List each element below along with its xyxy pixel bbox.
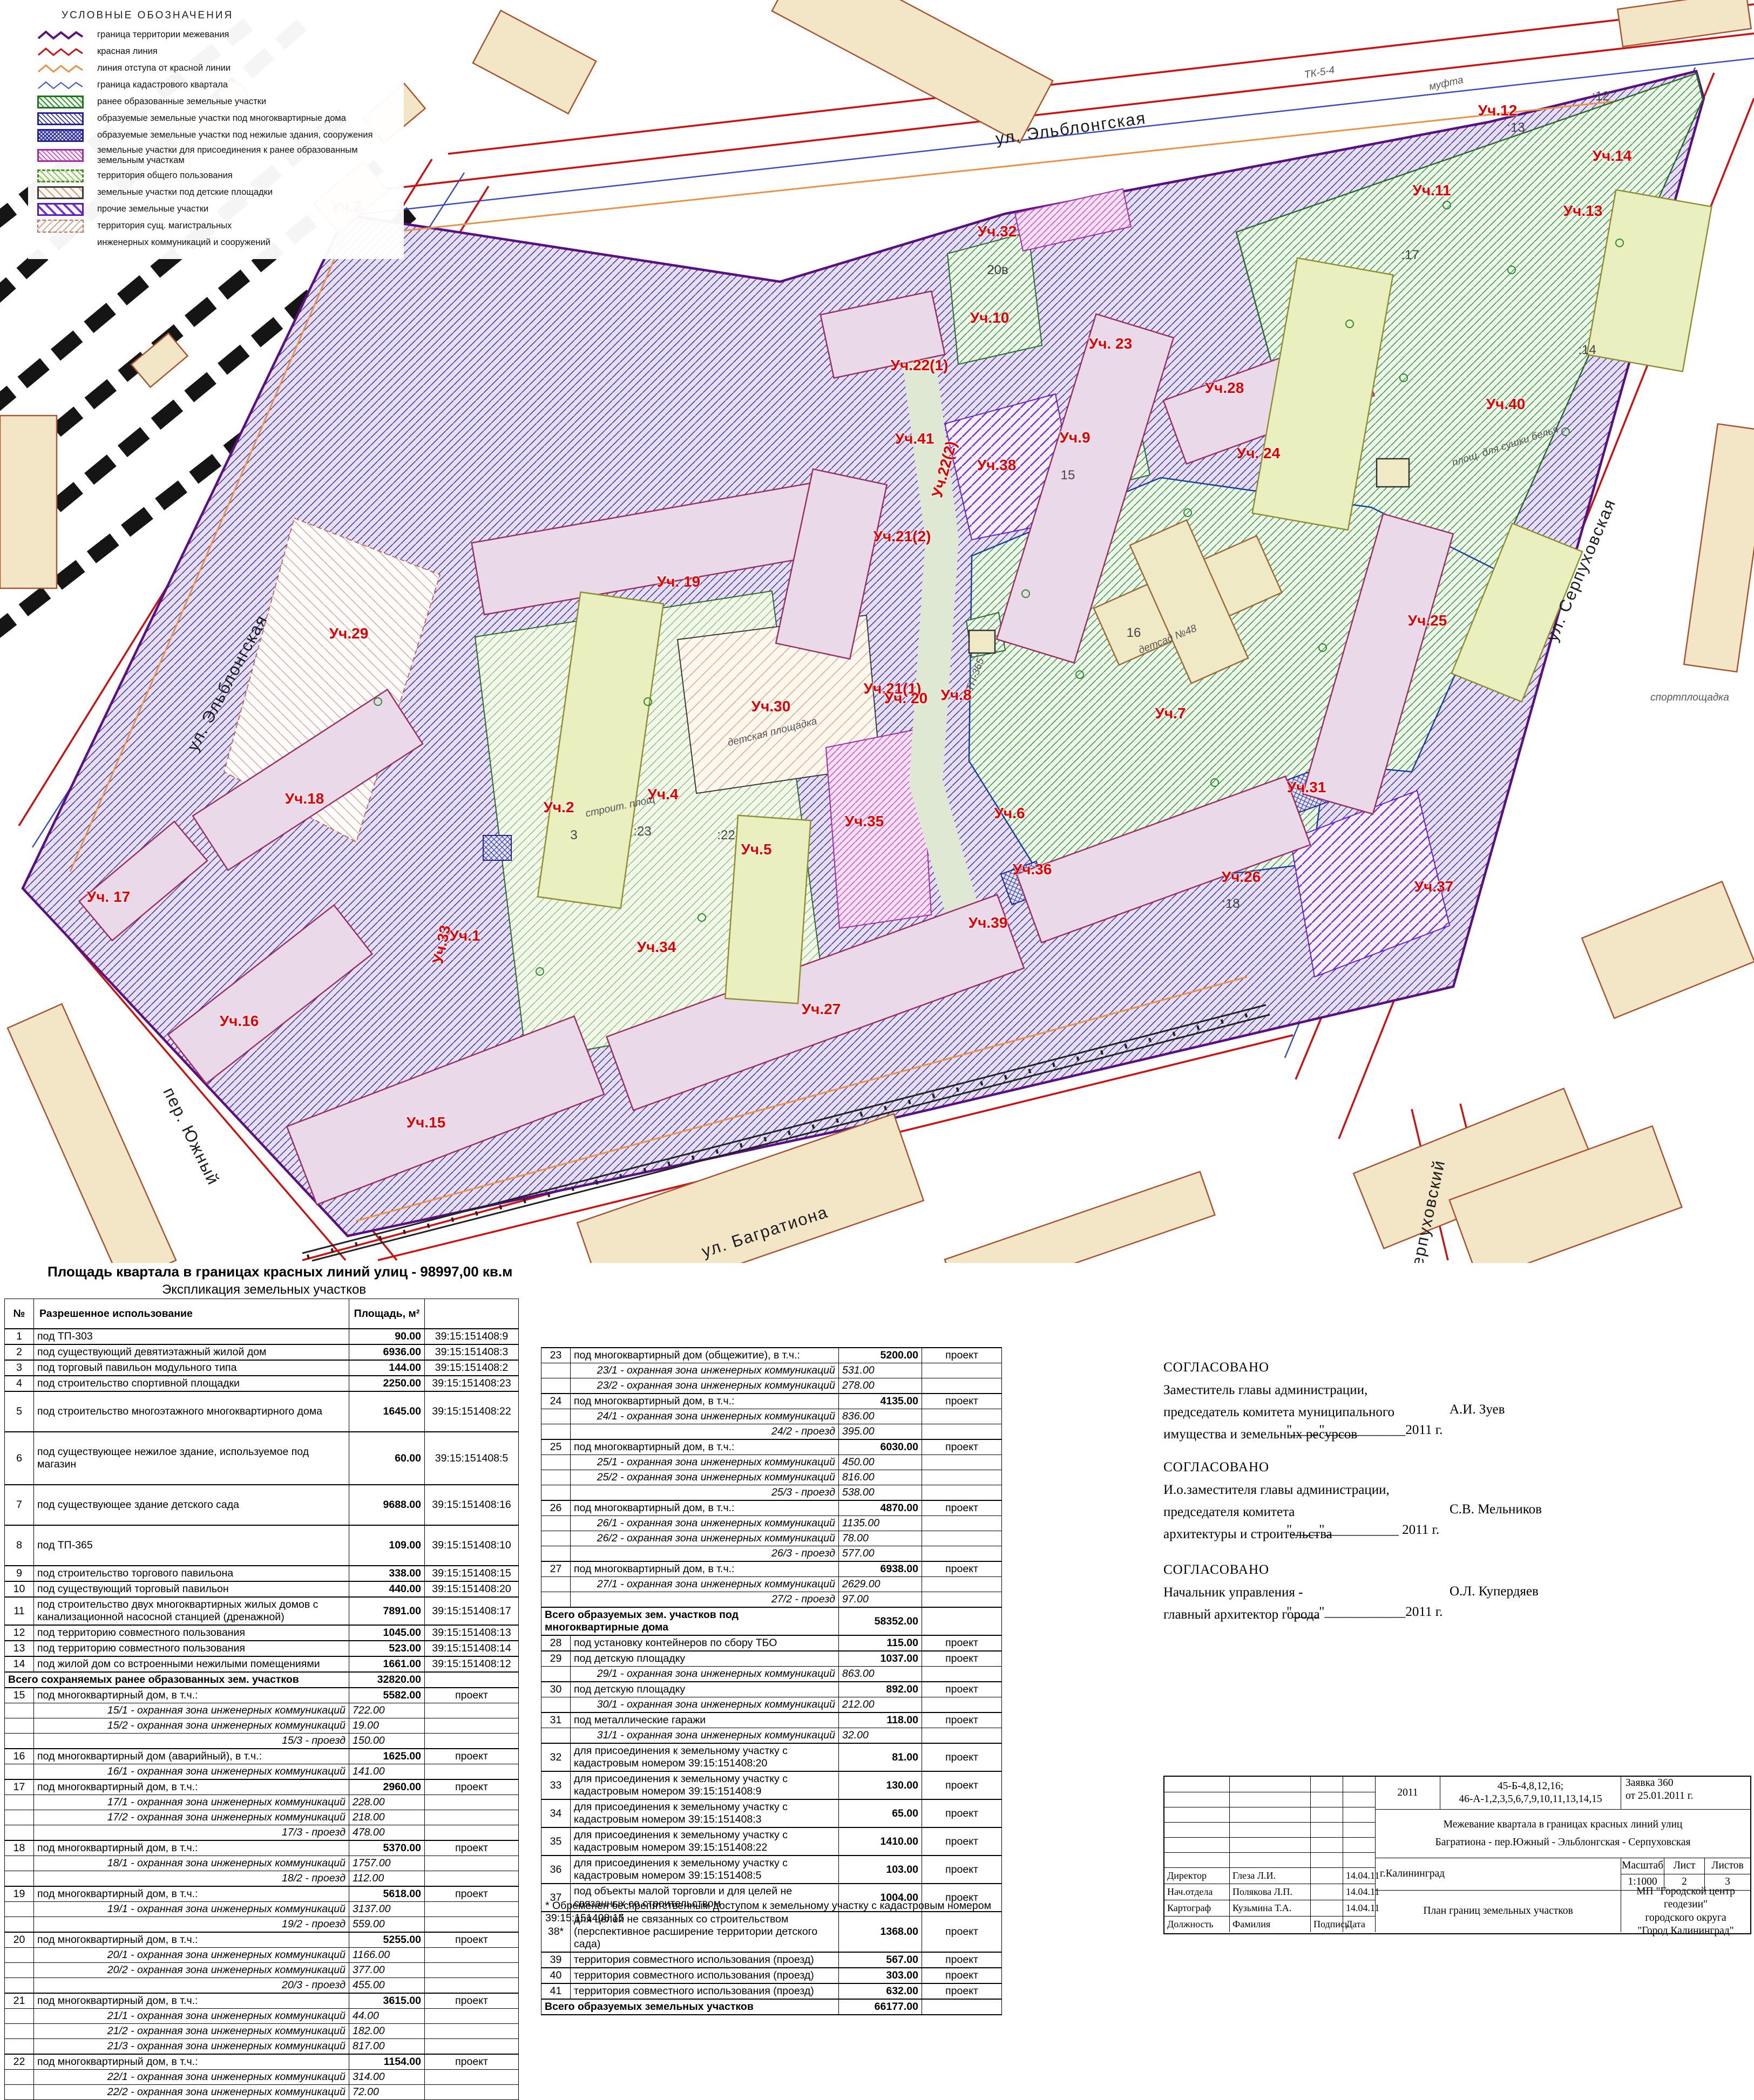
stamp-role-cell: Полякова Л.П. xyxy=(1229,1884,1310,1900)
approval-date-line: "____"____________2011 г. xyxy=(1286,1423,1443,1438)
row-use: под существующее нежилое здание, использ… xyxy=(34,1432,349,1485)
row-note: 39:15:151408:14 xyxy=(425,1641,519,1656)
row-number xyxy=(541,1409,571,1424)
row-note xyxy=(425,1764,519,1780)
row-note xyxy=(425,1734,519,1749)
row-note xyxy=(425,2024,519,2039)
parcel-row: 1под ТП-30390.0039:15:151408:9 xyxy=(5,1329,519,1344)
table-footnote: * Обременен беспрепятственным доступом к… xyxy=(545,1900,1010,1925)
row-use: под существующий торговый павильон xyxy=(34,1581,349,1597)
row-area: 109.00 xyxy=(349,1525,425,1566)
parcel-row: 24под многоквартирный дом, в т.ч.:4135.0… xyxy=(541,1394,1002,1409)
legend-line-symbol xyxy=(37,79,84,92)
sub-row: 20/2 - охранная зона инженерных коммуник… xyxy=(5,1963,519,1978)
row-note xyxy=(922,1363,1002,1378)
parcel-row: 20под многоквартирный дом, в т.ч.:5255.0… xyxy=(5,1932,519,1948)
legend-line-symbol xyxy=(37,62,84,75)
row-area: 5200.00 xyxy=(839,1348,922,1363)
approval-header: СОГЛАСОВАНО xyxy=(1163,1562,1749,1578)
approval-line: главный архитектор города xyxy=(1163,1607,1749,1622)
row-use: под металлические гаражи xyxy=(571,1712,839,1728)
approval-signer-name: О.Л. Купердяев xyxy=(1450,1584,1676,1599)
legend-item-label: ранее образованные земельные участки xyxy=(97,97,266,107)
row-area: 1037.00 xyxy=(839,1651,922,1667)
row-note: проект xyxy=(425,1688,519,1703)
col-header-area: Площадь, м² xyxy=(349,1299,425,1329)
title-block: ДиректорГлеза Л.И.14.04.11Нач.отделаПоля… xyxy=(1163,1776,1751,1934)
row-number: 6 xyxy=(5,1432,34,1485)
row-use: 23/1 - охранная зона инженерных коммуник… xyxy=(571,1363,839,1378)
row-area: 118.00 xyxy=(839,1712,922,1728)
parcel-label: Уч.14 xyxy=(1593,147,1632,164)
row-number: 31 xyxy=(541,1712,571,1728)
parcel-row: 14под жилой дом со встроенными нежилыми … xyxy=(5,1656,519,1672)
row-note xyxy=(922,1697,1002,1713)
row-note xyxy=(922,1531,1002,1546)
row-note xyxy=(425,1795,519,1810)
row-area: 450.00 xyxy=(839,1455,922,1470)
row-use: под многоквартирный дом, в т.ч.: xyxy=(571,1500,839,1516)
stamp-footer-label: Подпись xyxy=(1310,1916,1343,1932)
sub-row: 18/1 - охранная зона инженерных коммуник… xyxy=(5,1856,519,1871)
parcel-label: Уч.2 xyxy=(543,799,574,815)
sub-row: 21/2 - охранная зона инженерных коммуник… xyxy=(5,2024,519,2039)
parcel-label: Уч. 20 xyxy=(884,690,927,706)
stamp-role-cell xyxy=(1310,1900,1343,1916)
row-note xyxy=(425,1825,519,1841)
row-number xyxy=(5,1734,34,1749)
parcel-label: Уч.15 xyxy=(407,1114,446,1131)
sub-row: 17/3 - проезд478.00 xyxy=(5,1825,519,1841)
row-note: 39:15:151408:22 xyxy=(425,1391,519,1432)
row-area: 103.00 xyxy=(839,1856,922,1884)
approval-line: архитектуры и строительства xyxy=(1163,1527,1749,1542)
row-area: 1154.00 xyxy=(349,2054,425,2070)
row-use: под строительство торгового павильона xyxy=(34,1566,349,1581)
legend-item-label: образуемые земельные участки под нежилые… xyxy=(97,130,373,140)
row-note xyxy=(425,1856,519,1871)
parcel-row: 25под многоквартирный дом, в т.ч.:6030.0… xyxy=(541,1439,1002,1455)
row-use: 19/1 - охранная зона инженерных коммуник… xyxy=(34,1902,349,1917)
stamp-role-cell: Картограф xyxy=(1164,1900,1229,1916)
row-note: 39:15:151408:16 xyxy=(425,1485,519,1525)
stamp-footer-label: Дата xyxy=(1343,1916,1375,1932)
parcel-row: 9под строительство торгового павильона33… xyxy=(5,1566,519,1581)
row-area: 60.00 xyxy=(349,1432,425,1485)
legend-items: граница территории межеваниякрасная лини… xyxy=(37,28,404,249)
row-area: 816.00 xyxy=(839,1470,922,1485)
row-use: территория совместного использования (пр… xyxy=(571,1968,839,1983)
sub-row: 15/3 - проезд150.00 xyxy=(5,1734,519,1749)
row-note: 39:15:151408:20 xyxy=(425,1581,519,1597)
quarter-area-title: Площадь квартала в границах красных лини… xyxy=(48,1263,512,1280)
row-note: проект xyxy=(922,1743,1002,1771)
stamp-org: МП "Городской центр геодезии" городского… xyxy=(1621,1890,1750,1932)
row-note xyxy=(425,2070,519,2085)
stamp-role-cell: 14.04.11 xyxy=(1343,1900,1375,1916)
total-note xyxy=(425,1672,519,1688)
parcel-row: 11под строительство двух многоквартирных… xyxy=(5,1597,519,1625)
row-note: проект xyxy=(425,1932,519,1948)
row-number: 33 xyxy=(541,1771,571,1799)
explication-table-1: № Разрешенное использование Площадь, м² … xyxy=(4,1299,519,2100)
approval-signer-name: С.В. Мельников xyxy=(1450,1502,1676,1517)
row-area: 567.00 xyxy=(839,1952,922,1968)
parcel-label: Уч.40 xyxy=(1486,396,1526,412)
legend-item-label: территория сущ. магистральных xyxy=(97,221,232,231)
parcel-row: 7под существующее здание детского сада96… xyxy=(5,1485,519,1525)
parcel-row: 23под многоквартирный дом (общежитие), в… xyxy=(541,1348,1002,1363)
row-note: проект xyxy=(922,1561,1002,1577)
row-number xyxy=(5,1856,34,1871)
row-use: 31/1 - охранная зона инженерных коммуник… xyxy=(571,1728,839,1744)
legend-item-label: линия отступа от красной линии xyxy=(97,63,231,73)
row-number xyxy=(5,2039,34,2055)
parcel-label: Уч.5 xyxy=(741,841,771,858)
legend-line-symbol xyxy=(37,29,84,42)
parcel-label: Уч.30 xyxy=(751,698,791,715)
stamp-org-line2: городского округа xyxy=(1645,1912,1726,1925)
row-note: проект xyxy=(922,1348,1002,1363)
row-note xyxy=(922,1516,1002,1531)
row-number xyxy=(5,1795,34,1810)
row-note: проект xyxy=(425,1779,519,1795)
row-area: 130.00 xyxy=(839,1771,922,1799)
stamp-role-cell: Нач.отдела xyxy=(1164,1884,1229,1900)
parcel-row: 33для присоединения к земельному участку… xyxy=(541,1771,1002,1799)
row-area: 97.00 xyxy=(839,1592,922,1608)
stamp-footer-label: Фамилия xyxy=(1229,1916,1310,1932)
parcel-label: Уч.21(2) xyxy=(873,528,931,545)
row-area: 377.00 xyxy=(349,1963,425,1978)
total-note xyxy=(922,1999,1002,2015)
parcel-row: 12под территорию совместного пользования… xyxy=(5,1625,519,1641)
row-number: 36 xyxy=(541,1856,571,1884)
row-use: для присоединения к земельному участку с… xyxy=(571,1856,839,1884)
map-number: :14 xyxy=(1578,343,1596,357)
row-use: 17/3 - проезд xyxy=(34,1825,349,1841)
approval-block: СОГЛАСОВАНОЗаместитель главы администрац… xyxy=(1163,1360,1749,1449)
parcel-row: 39территория совместного использования (… xyxy=(541,1952,1002,1968)
row-number: 3 xyxy=(5,1360,34,1376)
stamp-role-cell: 14.04.11 xyxy=(1343,1884,1375,1900)
sub-row: 24/1 - охранная зона инженерных коммуник… xyxy=(541,1409,1002,1424)
row-use: под многоквартирный дом, в т.ч.: xyxy=(34,1779,349,1795)
parcel-row: 10под существующий торговый павильон440.… xyxy=(5,1581,519,1597)
row-number xyxy=(5,2070,34,2085)
row-use: 21/2 - охранная зона инженерных коммуник… xyxy=(34,2024,349,2039)
row-use: под территорию совместного пользования xyxy=(34,1625,349,1641)
row-note xyxy=(922,1667,1002,1682)
parcel-row: 6под существующее нежилое здание, исполь… xyxy=(5,1432,519,1485)
row-area: 440.00 xyxy=(349,1581,425,1597)
row-use: 18/1 - охранная зона инженерных коммуник… xyxy=(34,1856,349,1871)
row-use: под детскую площадку xyxy=(571,1651,839,1667)
sub-row: 27/2 - проезд97.00 xyxy=(541,1592,1002,1608)
row-use: под многоквартирный дом, в т.ч.: xyxy=(571,1439,839,1455)
stamp-sheet-label: Лист xyxy=(1664,1858,1704,1874)
row-use: 20/2 - охранная зона инженерных коммуник… xyxy=(34,1963,349,1978)
parcel-row: 30под детскую площадку892.00проект xyxy=(541,1682,1002,1697)
total-label: Всего образуемых зем. участков под много… xyxy=(541,1607,839,1635)
col-header-number: № xyxy=(5,1299,34,1329)
sub-row: 25/3 - проезд538.00 xyxy=(541,1485,1002,1501)
row-area: 3137.00 xyxy=(349,1902,425,1917)
row-note xyxy=(922,1728,1002,1744)
sub-row: 26/2 - охранная зона инженерных коммуник… xyxy=(541,1531,1002,1546)
row-number: 17 xyxy=(5,1779,34,1795)
sub-row: 26/3 - проезд577.00 xyxy=(541,1546,1002,1562)
row-note: 39:15:151408:17 xyxy=(425,1597,519,1625)
row-number: 20 xyxy=(5,1932,34,1948)
legend-swatch xyxy=(37,129,84,142)
sub-row: 23/2 - охранная зона инженерных коммуник… xyxy=(541,1378,1002,1394)
row-area: 7891.00 xyxy=(349,1597,425,1625)
row-number xyxy=(5,1764,34,1780)
row-note xyxy=(425,2085,519,2100)
row-area: 32.00 xyxy=(839,1728,922,1744)
stamp-role-cell xyxy=(1310,1867,1343,1884)
row-area: 722.00 xyxy=(349,1703,425,1718)
row-use: 29/1 - охранная зона инженерных коммуник… xyxy=(571,1667,839,1682)
row-area: 314.00 xyxy=(349,2070,425,2085)
row-number: 24 xyxy=(541,1394,571,1409)
row-area: 144.00 xyxy=(349,1360,425,1376)
legend-swatch xyxy=(37,149,84,162)
sub-row: 19/1 - охранная зона инженерных коммуник… xyxy=(5,1902,519,1917)
parcel-row: 4под строительство спортивной площадки22… xyxy=(5,1376,519,1391)
row-area: 212.00 xyxy=(839,1697,922,1713)
row-area: 6030.00 xyxy=(839,1439,922,1455)
row-area: 278.00 xyxy=(839,1378,922,1394)
parcel-row: 40территория совместного использования (… xyxy=(541,1968,1002,1983)
parcel-label: Уч.28 xyxy=(1205,379,1244,396)
row-number: 19 xyxy=(5,1886,34,1902)
row-use: 15/2 - охранная зона инженерных коммуник… xyxy=(34,1718,349,1734)
row-use: 26/3 - проезд xyxy=(571,1546,839,1562)
row-note xyxy=(425,2009,519,2024)
stamp-title: Межевание квартала в границах красных ли… xyxy=(1375,1809,1750,1858)
row-number: 9 xyxy=(5,1566,34,1581)
row-number: 41 xyxy=(541,1983,571,1999)
row-use: под многоквартирный дом (аварийный), в т… xyxy=(34,1749,349,1764)
zone-nonres-1 xyxy=(483,835,511,860)
row-note: проект xyxy=(922,1500,1002,1516)
approval-line: И.о.заместителя главы администрации, xyxy=(1163,1483,1749,1498)
row-note xyxy=(922,1485,1002,1501)
legend-item: территория общего пользования xyxy=(37,169,404,182)
legend-swatch xyxy=(37,169,84,182)
row-area: 523.00 xyxy=(349,1641,425,1656)
parcel-row: 21под многоквартирный дом, в т.ч.:3615.0… xyxy=(5,1993,519,2009)
parcel-row: 41территория совместного использования (… xyxy=(541,1983,1002,1999)
parcel-label: Уч. 19 xyxy=(657,573,700,590)
row-use: под многоквартирный дом, в т.ч.: xyxy=(34,1993,349,2009)
row-number xyxy=(541,1667,571,1682)
row-area: 338.00 xyxy=(349,1566,425,1581)
row-number xyxy=(5,1902,34,1917)
row-note: 39:15:151408:3 xyxy=(425,1344,519,1360)
row-area: 1757.00 xyxy=(349,1856,425,1871)
row-number: 2 xyxy=(5,1344,34,1360)
legend-item: территория сущ. магистральных xyxy=(37,219,404,233)
row-use: 24/2 - проезд xyxy=(571,1424,839,1440)
approval-header: СОГЛАСОВАНО xyxy=(1163,1360,1749,1375)
legend-item-label: образуемые земельные участки под многокв… xyxy=(97,113,346,124)
approval-header: СОГЛАСОВАНО xyxy=(1163,1460,1749,1475)
row-use: под ТП-303 xyxy=(34,1329,349,1344)
row-use: под детскую площадку xyxy=(571,1682,839,1697)
row-use: 17/1 - охранная зона инженерных коммуник… xyxy=(34,1795,349,1810)
map-number: 20в xyxy=(987,263,1008,277)
sub-row: 26/1 - охранная зона инженерных коммуник… xyxy=(541,1516,1002,1531)
row-note xyxy=(425,1902,519,1917)
row-area: 1645.00 xyxy=(349,1391,425,1432)
row-area: 1045.00 xyxy=(349,1625,425,1641)
parcel-label: Уч.26 xyxy=(1222,868,1261,885)
row-number xyxy=(541,1697,571,1713)
row-note: 39:15:151408:12 xyxy=(425,1656,519,1672)
sub-row: 21/1 - охранная зона инженерных коммуник… xyxy=(5,2009,519,2024)
parcel-label: Уч.35 xyxy=(845,813,884,830)
row-use: 20/3 - проезд xyxy=(34,1978,349,1994)
parcel-row: 29под детскую площадку1037.00проект xyxy=(541,1651,1002,1667)
legend-swatch xyxy=(37,96,84,108)
approval-block: СОГЛАСОВАНОНачальник управления -главный… xyxy=(1163,1562,1749,1629)
row-use: для присоединения к земельному участку с… xyxy=(571,1827,839,1856)
row-use: 25/2 - охранная зона инженерных коммуник… xyxy=(571,1470,839,1485)
row-number: 27 xyxy=(541,1561,571,1577)
parcel-row: 26под многоквартирный дом, в т.ч.:4870.0… xyxy=(541,1500,1002,1516)
approval-date-line: "____"___________ 2011 г. xyxy=(1286,1523,1439,1538)
total-row: Всего образуемых земельных участков66177… xyxy=(541,1999,1002,2015)
row-number: 18 xyxy=(5,1840,34,1856)
row-area: 90.00 xyxy=(349,1329,425,1344)
row-use: под существующий девятиэтажный жилой дом xyxy=(34,1344,349,1360)
stamp-code-line1: 45-Б-4,8,12,16; xyxy=(1498,1780,1563,1793)
row-use: 16/1 - охранная зона инженерных коммуник… xyxy=(34,1764,349,1780)
legend-item: ранее образованные земельные участки xyxy=(37,95,404,108)
legend-item: прочие земельные участки xyxy=(37,202,404,216)
row-number xyxy=(5,1948,34,1963)
row-number xyxy=(541,1592,571,1608)
row-note xyxy=(425,1978,519,1994)
row-number: 39 xyxy=(541,1952,571,1968)
row-number xyxy=(541,1424,571,1440)
row-area: 836.00 xyxy=(839,1409,922,1424)
row-use: 27/2 - проезд xyxy=(571,1592,839,1608)
parcel-row: 34для присоединения к земельному участку… xyxy=(541,1799,1002,1827)
row-area: 5255.00 xyxy=(349,1932,425,1948)
sub-row: 15/1 - охранная зона инженерных коммуник… xyxy=(5,1703,519,1718)
parcel-row: 17под многоквартирный дом, в т.ч.:2960.0… xyxy=(5,1779,519,1795)
row-area: 1661.00 xyxy=(349,1656,425,1672)
row-note xyxy=(425,1948,519,1963)
stamp-role-cell: Глеза Л.И. xyxy=(1229,1867,1310,1884)
legend-swatch xyxy=(37,186,84,199)
row-use: под многоквартирный дом, в т.ч.: xyxy=(571,1394,839,1409)
legend-swatch xyxy=(37,203,84,216)
legend-title: УСЛОВНЫЕ ОБОЗНАЧЕНИЯ xyxy=(62,10,404,22)
row-note: проект xyxy=(922,1712,1002,1728)
stamp-doc-type: План границ земельных участков xyxy=(1375,1890,1621,1932)
row-number: 25 xyxy=(541,1439,571,1455)
row-number xyxy=(541,1455,571,1470)
row-area: 5582.00 xyxy=(349,1688,425,1703)
row-area: 4870.00 xyxy=(839,1500,922,1516)
row-number xyxy=(5,1963,34,1978)
row-number: 34 xyxy=(541,1799,571,1827)
parcel-row: 3под торговый павильон модульного типа14… xyxy=(5,1360,519,1376)
row-use: под многоквартирный дом, в т.ч.: xyxy=(34,2054,349,2070)
stamp-year: 2011 xyxy=(1375,1777,1440,1809)
row-area: 112.00 xyxy=(349,1871,425,1887)
row-note xyxy=(922,1455,1002,1470)
cadastral-plan-sheet: { "legend": { "title": "УСЛОВНЫЕ ОБОЗНАЧ… xyxy=(0,0,1754,1935)
row-note: проект xyxy=(922,1682,1002,1697)
row-note: 39:15:151408:15 xyxy=(425,1566,519,1581)
row-use: 20/1 - охранная зона инженерных коммуник… xyxy=(34,1948,349,1963)
total-area: 66177.00 xyxy=(839,1999,922,2015)
row-area: 9688.00 xyxy=(349,1485,425,1525)
parcel-label: Уч.25 xyxy=(1408,612,1447,629)
approval-line: Заместитель главы администрации, xyxy=(1163,1383,1749,1398)
parcel-row: 35для присоединения к земельному участку… xyxy=(541,1827,1002,1856)
row-area: 3615.00 xyxy=(349,1993,425,2009)
row-area: 395.00 xyxy=(839,1424,922,1440)
sub-row: 29/1 - охранная зона инженерных коммуник… xyxy=(541,1667,1002,1682)
row-use: для присоединения к земельному участку с… xyxy=(571,1799,839,1827)
parcel-row: 32для присоединения к земельному участку… xyxy=(541,1743,1002,1771)
parcel-row: 31под металлические гаражи118.00проект xyxy=(541,1712,1002,1728)
row-area: 892.00 xyxy=(839,1682,922,1697)
row-area: 6936.00 xyxy=(349,1344,425,1360)
parcel-row: 13под территорию совместного пользования… xyxy=(5,1641,519,1656)
row-area: 5618.00 xyxy=(349,1886,425,1902)
map-annotation: спортплощадка xyxy=(1650,692,1729,703)
row-number xyxy=(5,1825,34,1841)
row-area: 531.00 xyxy=(839,1363,922,1378)
row-number xyxy=(541,1728,571,1744)
row-area: 632.00 xyxy=(839,1983,922,1999)
row-area: 2960.00 xyxy=(349,1779,425,1795)
legend: УСЛОВНЫЕ ОБОЗНАЧЕНИЯ граница территории … xyxy=(28,4,404,259)
stamp-request: Заявка 360 от 25.01.2011 г. xyxy=(1621,1777,1750,1809)
row-use: 25/3 - проезд xyxy=(571,1485,839,1501)
row-use: 22/1 - охранная зона инженерных коммуник… xyxy=(34,2070,349,2085)
stamp-org-line1: МП "Городской центр геодезии" xyxy=(1621,1885,1750,1912)
row-number: 13 xyxy=(5,1641,34,1656)
parcel-row: 8под ТП-365109.0039:15:151408:10 xyxy=(5,1525,519,1566)
row-use: под жилой дом со встроенными нежилыми по… xyxy=(34,1656,349,1672)
row-number: 40 xyxy=(541,1968,571,1983)
row-number: 35 xyxy=(541,1827,571,1856)
row-area: 577.00 xyxy=(839,1546,922,1562)
row-use: 15/3 - проезд xyxy=(34,1734,349,1749)
parcel-label: Уч.13 xyxy=(1563,202,1603,219)
row-area: 4135.00 xyxy=(839,1394,922,1409)
row-note: 39:15:151408:10 xyxy=(425,1525,519,1566)
zone-parcel10 xyxy=(947,232,1042,364)
legend-item-label: граница территории межевания xyxy=(97,30,229,40)
row-use: 27/1 - охранная зона инженерных коммуник… xyxy=(571,1577,839,1592)
row-use: для присоединения к земельному участку с… xyxy=(571,1771,839,1799)
row-note: 39:15:151408:2 xyxy=(425,1360,519,1376)
sub-row: 22/2 - охранная зона инженерных коммуник… xyxy=(5,2085,519,2100)
row-area: 81.00 xyxy=(839,1743,922,1771)
total-note xyxy=(922,1607,1002,1635)
row-area: 5370.00 xyxy=(349,1840,425,1856)
